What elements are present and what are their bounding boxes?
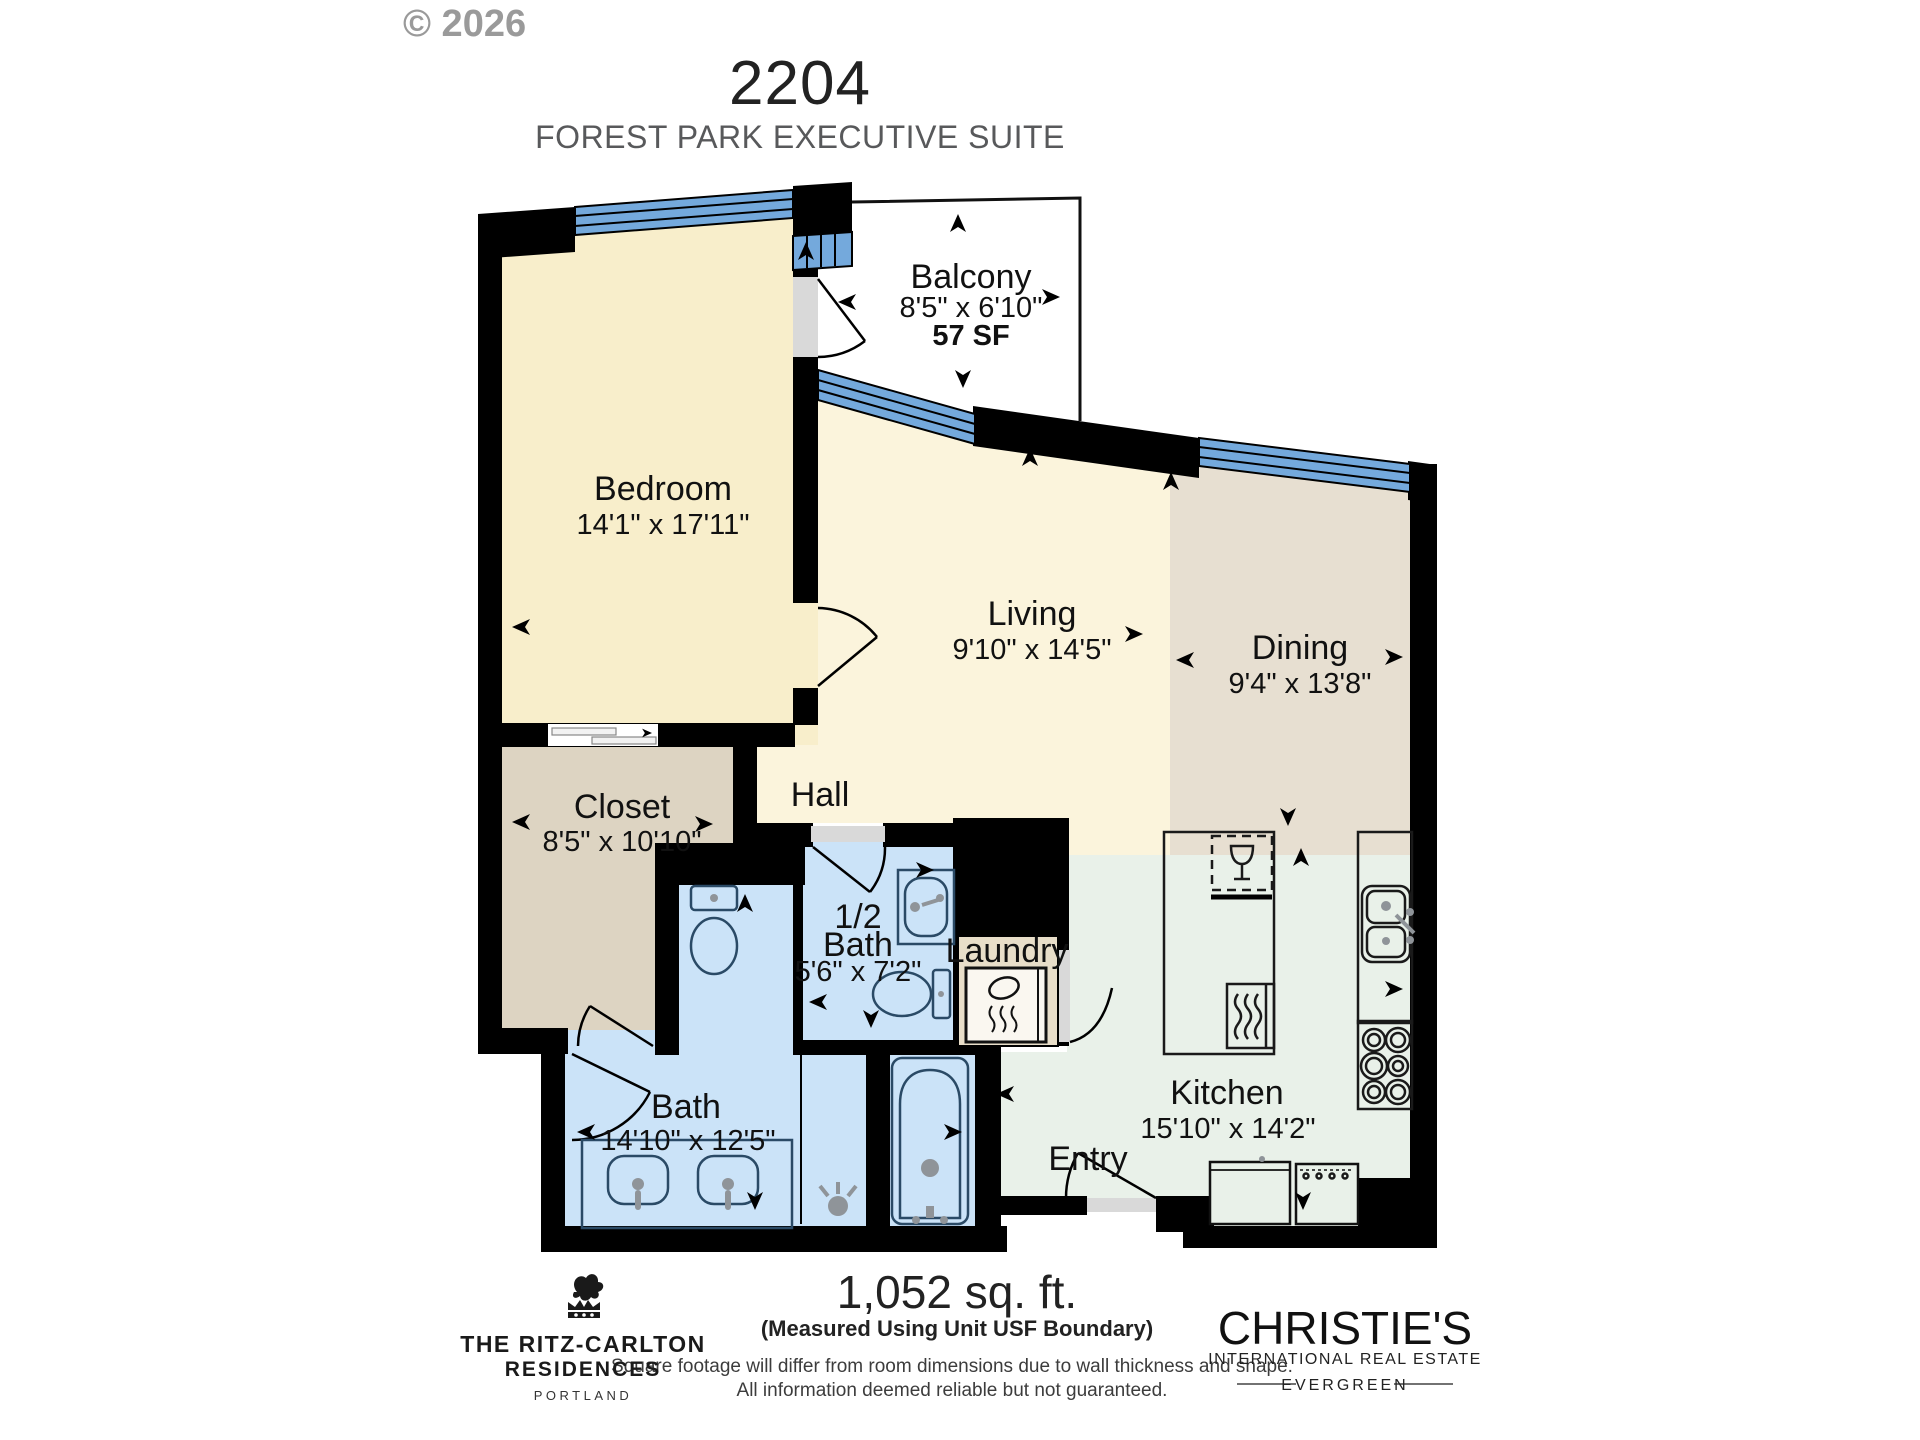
christies-line-3: EVERGREEN <box>1281 1377 1408 1394</box>
floor-plan-page: © 2026 2204 FOREST PARK EXECUTIVE SUITE <box>0 0 1920 1440</box>
bath-label: Bath <box>651 1088 721 1126</box>
disclaimer-line-2: All information deemed reliable but not … <box>737 1380 1168 1401</box>
christies-line-1: CHRISTIE'S <box>1218 1302 1472 1354</box>
balcony-label: Balcony <box>911 258 1032 296</box>
disclaimer-line-1: Square footage will differ from room dim… <box>611 1356 1293 1377</box>
measure-note-text: (Measured Using Unit USF Boundary) <box>761 1316 1153 1341</box>
footer: 1,052 sq. ft. (Measured Using Unit USF B… <box>460 1266 1482 1403</box>
suite-name-subtitle: FOREST PARK EXECUTIVE SUITE <box>535 119 1065 155</box>
balcony-slider-door <box>793 232 852 270</box>
ritz-line-2: RESIDENCES <box>505 1358 662 1381</box>
living-label: Living <box>988 595 1077 633</box>
christies-logo: CHRISTIE'S INTERNATIONAL REAL ESTATE EVE… <box>1208 1302 1482 1394</box>
balcony-area: 57 SF <box>932 320 1009 352</box>
bedroom-dims: 14'1" x 17'11" <box>576 509 749 541</box>
range-oven <box>1296 1164 1358 1224</box>
kitchen-dims: 15'10" x 14'2" <box>1140 1113 1315 1145</box>
ritz-line-3: PORTLAND <box>534 1388 633 1403</box>
copyright-watermark: © 2026 <box>403 3 526 45</box>
half-bath-dims: 5'6" x 7'2" <box>795 956 922 988</box>
total-area-text: 1,052 sq. ft. <box>837 1266 1077 1318</box>
bedroom-label: Bedroom <box>594 470 732 508</box>
closet-dims: 8'5" x 10'10" <box>542 826 701 858</box>
dining-label: Dining <box>1252 629 1348 667</box>
floor-plan-canvas: © 2026 2204 FOREST PARK EXECUTIVE SUITE <box>0 0 1920 1440</box>
laundry-label: Laundry <box>946 932 1069 970</box>
christies-line-2: INTERNATIONAL REAL ESTATE <box>1208 1351 1482 1368</box>
hall-label: Hall <box>791 776 850 814</box>
bath-dims: 14'10" x 12'5" <box>600 1125 775 1157</box>
dining-dims: 9'4" x 13'8" <box>1229 668 1372 700</box>
ritz-carlton-logo: THE RITZ-CARLTON RESIDENCES PORTLAND <box>460 1274 705 1403</box>
ritz-line-1: THE RITZ-CARLTON <box>460 1331 705 1357</box>
toilet-room-floor <box>660 865 800 1055</box>
refrigerator <box>1210 1156 1290 1224</box>
hall-bath-doorway <box>811 826 885 842</box>
entry-label: Entry <box>1048 1140 1127 1178</box>
closet-label: Closet <box>574 788 671 826</box>
lion-crown-icon <box>568 1274 603 1318</box>
living-dims: 9'10" x 14'5" <box>952 634 1111 666</box>
kitchen-label: Kitchen <box>1170 1074 1283 1112</box>
unit-number-title: 2204 <box>729 49 871 118</box>
bedroom-closet-slider <box>548 724 658 746</box>
